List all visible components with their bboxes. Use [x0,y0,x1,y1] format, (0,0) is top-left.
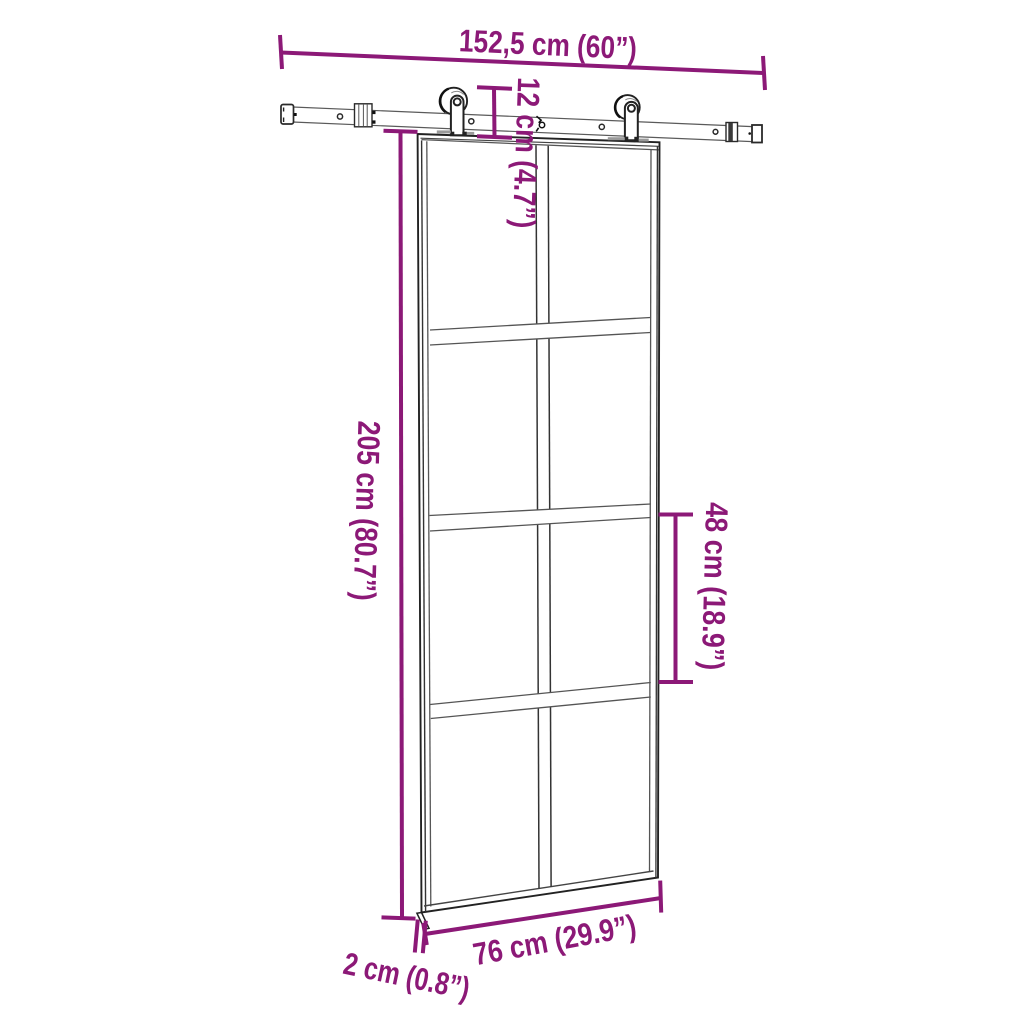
svg-text:2 cm (0.8”): 2 cm (0.8”) [340,945,473,1006]
svg-text:48 cm (18.9”): 48 cm (18.9”) [695,502,735,671]
svg-text:12 cm (4.7”): 12 cm (4.7”) [506,77,547,229]
svg-text:205 cm (80.7”): 205 cm (80.7”) [347,420,388,601]
svg-text:76 cm (29.9”): 76 cm (29.9”) [470,907,639,972]
